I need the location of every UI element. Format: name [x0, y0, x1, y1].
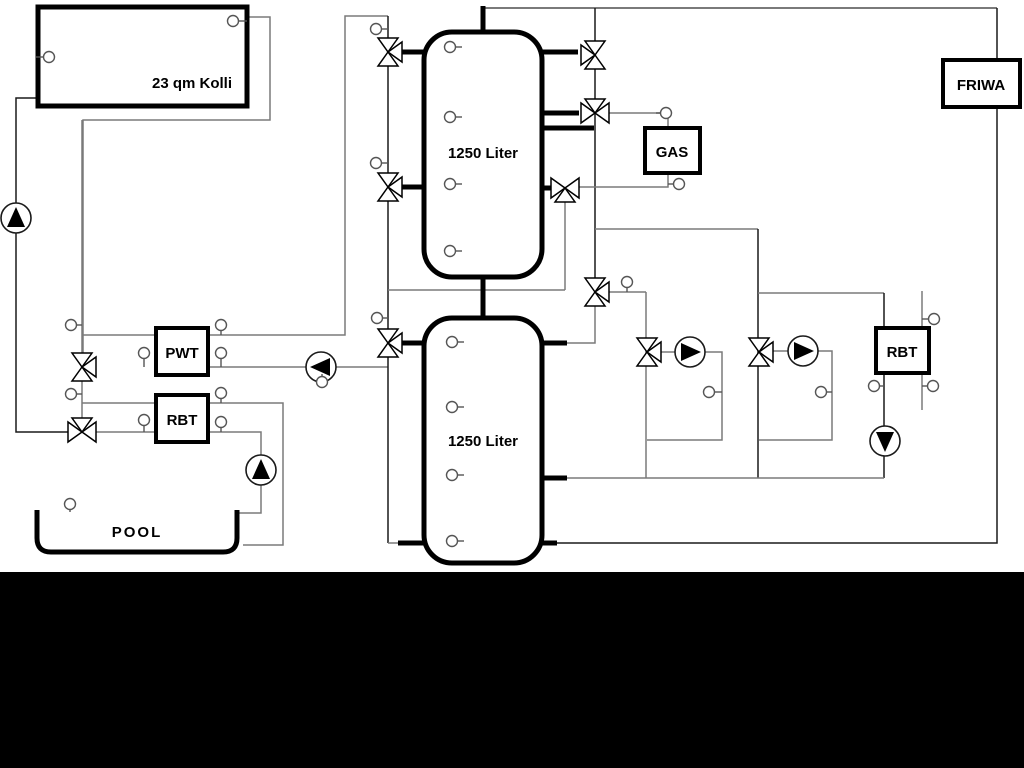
distribution-valve-3way-valve-icon — [585, 278, 609, 306]
sensor-bulb — [869, 381, 880, 392]
circuit1-pump-icon — [675, 337, 705, 367]
sensor-bulb — [66, 389, 77, 400]
pool-label: POOL — [112, 524, 163, 541]
sensor-bulb — [228, 16, 239, 27]
solar-pwt-valve-3way-valve-icon — [72, 353, 96, 381]
tank1-mid-charge-valve-3way-valve-icon — [378, 173, 402, 201]
sensor-bulb — [139, 348, 150, 359]
sensor-bulb — [317, 377, 328, 388]
gas-boiler-label: GAS — [656, 144, 689, 161]
sensor-icon — [622, 277, 633, 293]
sensor-icon — [922, 314, 940, 325]
circuit2-pump-icon — [788, 336, 818, 366]
schematic-canvas: 1250 Liter1250 Liter23 qm KolliPWTRBTGAS… — [0, 0, 1024, 572]
pool-pump-icon — [246, 455, 276, 485]
sensor-icon — [216, 348, 227, 368]
rbt-right-label: RBT — [887, 344, 918, 361]
sensor-icon — [139, 415, 150, 433]
sensor-icon — [66, 389, 83, 400]
sensor-bulb — [445, 179, 456, 190]
sensor-icon — [216, 388, 227, 404]
sensor-bulb — [622, 277, 633, 288]
solar-collector-label: 23 qm Kolli — [152, 75, 232, 92]
sensor-bulb — [704, 387, 715, 398]
sensor-bulb — [674, 179, 685, 190]
rbt-right-pump-icon — [870, 426, 900, 456]
sensor-bulb — [216, 388, 227, 399]
sensor-icon — [216, 417, 227, 433]
sensor-bulb — [447, 337, 458, 348]
sensor-icon — [216, 320, 227, 336]
sensor-icon — [704, 387, 723, 398]
pool-rbt-valve-3way-valve-icon — [68, 418, 96, 442]
sensor-icon — [371, 158, 389, 169]
sensor-bulb — [447, 470, 458, 481]
tank1-top-out-valve-3way-valve-icon — [581, 41, 605, 69]
sensor-bulb — [928, 381, 939, 392]
sensor-bulb — [216, 320, 227, 331]
heating-circuit1-mixer-3way-valve-icon — [637, 338, 661, 366]
tank1-top-charge-valve-3way-valve-icon — [378, 38, 402, 66]
sensor-bulb — [216, 348, 227, 359]
sensor-bulb — [445, 112, 456, 123]
sensor-icon — [668, 179, 685, 190]
hydraulic-scheme-svg: 1250 Liter1250 Liter23 qm KolliPWTRBTGAS… — [0, 0, 1024, 572]
sensor-bulb — [447, 536, 458, 547]
sensor-icon — [371, 24, 389, 35]
sensor-bulb — [445, 246, 456, 257]
sensor-icon — [869, 381, 885, 392]
heating-circuit2-mixer-3way-valve-icon — [749, 338, 773, 366]
sensor-bulb — [661, 108, 672, 119]
sensor-bulb — [816, 387, 827, 398]
sensor-bulb — [139, 415, 150, 426]
sensor-bulb — [371, 158, 382, 169]
friwa-station-label: FRIWA — [957, 77, 1005, 94]
sensor-icon — [372, 313, 389, 324]
solar-pump-icon — [1, 203, 31, 233]
sensor-icon — [66, 320, 83, 331]
sensor-bulb — [65, 499, 76, 510]
sensor-bulb — [44, 52, 55, 63]
sensor-bulb — [445, 42, 456, 53]
pipe — [16, 98, 68, 432]
letterbox-band — [0, 572, 1024, 768]
buffer-tank-lower-label: 1250 Liter — [448, 433, 518, 450]
sensor-icon — [656, 108, 672, 119]
pipe — [578, 173, 668, 187]
gas-return-valve-3way-valve-icon — [551, 178, 579, 202]
sensor-icon — [816, 387, 833, 398]
sensor-bulb — [371, 24, 382, 35]
sensor-icon — [139, 348, 150, 368]
sensor-icon — [65, 499, 76, 513]
buffer-tank-upper-label: 1250 Liter — [448, 145, 518, 162]
sensor-bulb — [447, 402, 458, 413]
tank2-top-charge-valve-3way-valve-icon — [378, 329, 402, 357]
pipe — [566, 305, 595, 343]
pipe — [556, 8, 997, 543]
pwt-heat-exchanger-label: PWT — [165, 345, 198, 362]
sensor-bulb — [216, 417, 227, 428]
sensor-bulb — [929, 314, 940, 325]
schematic-page: 1250 Liter1250 Liter23 qm KolliPWTRBTGAS… — [0, 0, 1024, 768]
sensor-bulb — [372, 313, 383, 324]
sensor-bulb — [66, 320, 77, 331]
sensor-icon — [922, 381, 939, 392]
rbt-left-label: RBT — [167, 412, 198, 429]
